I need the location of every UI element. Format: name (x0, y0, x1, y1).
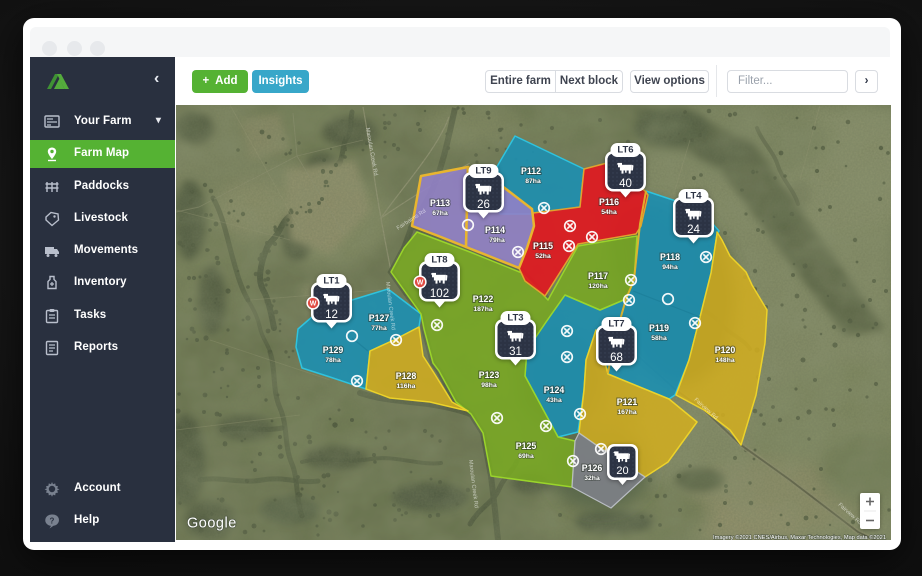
svg-text:167ha: 167ha (617, 409, 636, 416)
svg-text:P121: P121 (617, 397, 638, 407)
svg-text:P115: P115 (533, 241, 553, 251)
svg-text:LT9: LT9 (475, 166, 491, 177)
svg-text:LT3: LT3 (507, 313, 523, 324)
svg-text:54ha: 54ha (601, 209, 617, 216)
svg-text:26: 26 (477, 199, 490, 211)
svg-text:P129: P129 (323, 345, 344, 355)
svg-text:187ha: 187ha (473, 306, 492, 313)
svg-text:P124: P124 (544, 385, 565, 395)
svg-text:P120: P120 (715, 345, 736, 355)
svg-text:W: W (310, 301, 317, 308)
svg-text:LT8: LT8 (431, 255, 447, 266)
svg-text:LT1: LT1 (323, 276, 340, 287)
svg-text:Imagery ©2021 CNES/Airbus, Max: Imagery ©2021 CNES/Airbus, Maxar Technol… (713, 534, 886, 540)
svg-text:W: W (417, 280, 424, 287)
svg-text:58ha: 58ha (651, 335, 667, 342)
svg-text:P122: P122 (473, 294, 494, 304)
svg-text:68: 68 (610, 352, 623, 364)
svg-text:P123: P123 (479, 370, 500, 380)
svg-text:77ha: 77ha (371, 325, 387, 332)
svg-text:LT4: LT4 (685, 191, 702, 202)
svg-text:32ha: 32ha (584, 475, 600, 482)
svg-text:148ha: 148ha (715, 357, 734, 364)
svg-text:P113: P113 (430, 198, 450, 208)
svg-text:P117: P117 (588, 271, 608, 281)
svg-text:102: 102 (430, 288, 449, 300)
svg-text:78ha: 78ha (325, 357, 341, 364)
svg-text:24: 24 (687, 224, 700, 236)
svg-text:94ha: 94ha (662, 264, 678, 271)
svg-text:40: 40 (619, 178, 632, 190)
svg-text:LT7: LT7 (608, 319, 624, 330)
svg-text:P116: P116 (599, 197, 619, 207)
svg-text:P128: P128 (396, 371, 417, 381)
svg-text:Google: Google (187, 516, 237, 532)
svg-text:43ha: 43ha (546, 397, 562, 404)
svg-text:87ha: 87ha (525, 178, 541, 185)
svg-text:P112: P112 (521, 166, 541, 176)
svg-text:52ha: 52ha (535, 253, 551, 260)
svg-text:31: 31 (509, 346, 522, 358)
svg-text:P118: P118 (660, 252, 680, 262)
svg-text:116ha: 116ha (397, 383, 416, 390)
svg-text:P119: P119 (649, 323, 669, 333)
svg-text:P127: P127 (369, 313, 390, 323)
svg-text:P125: P125 (516, 441, 537, 451)
svg-text:98ha: 98ha (481, 382, 497, 389)
svg-text:120ha: 120ha (588, 283, 607, 290)
svg-text:P114: P114 (485, 225, 505, 235)
svg-text:67ha: 67ha (432, 210, 448, 217)
svg-text:20: 20 (616, 465, 628, 477)
svg-text:LT6: LT6 (617, 145, 633, 156)
svg-text:12: 12 (325, 309, 338, 321)
svg-text:P126: P126 (582, 463, 603, 473)
svg-text:?: ? (50, 517, 55, 526)
svg-text:79ha: 79ha (489, 237, 505, 244)
svg-text:69ha: 69ha (518, 453, 534, 460)
